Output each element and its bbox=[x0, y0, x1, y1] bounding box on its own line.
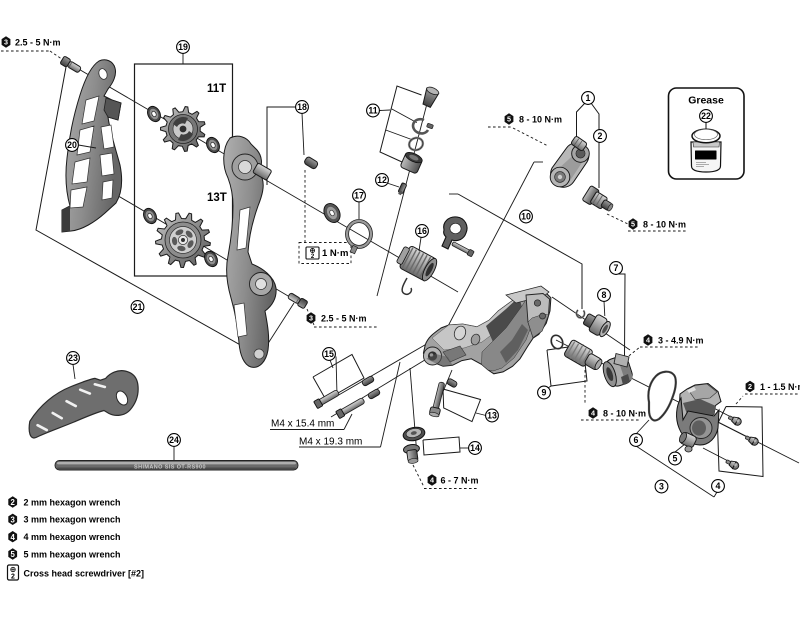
svg-text:15: 15 bbox=[324, 349, 334, 359]
svg-text:3: 3 bbox=[11, 515, 16, 524]
svg-text:6 - 7 N·m: 6 - 7 N·m bbox=[441, 476, 479, 486]
svg-text:M4 x 15.4 mm: M4 x 15.4 mm bbox=[271, 419, 334, 430]
svg-text:Cross head screwdriver [#2]: Cross head screwdriver [#2] bbox=[24, 569, 145, 579]
svg-text:11T: 11T bbox=[207, 83, 226, 95]
svg-text:10: 10 bbox=[521, 212, 531, 222]
svg-text:4: 4 bbox=[430, 476, 434, 485]
svg-text:2: 2 bbox=[11, 498, 16, 507]
svg-text:16: 16 bbox=[417, 226, 427, 236]
svg-text:2 mm hexagon wrench: 2 mm hexagon wrench bbox=[24, 497, 121, 507]
svg-text:5: 5 bbox=[507, 115, 511, 124]
svg-text:SHIMANO SIS OT-RS900: SHIMANO SIS OT-RS900 bbox=[134, 465, 206, 471]
svg-text:8: 8 bbox=[602, 290, 607, 300]
svg-text:22: 22 bbox=[701, 111, 711, 121]
svg-text:4 mm hexagon wrench: 4 mm hexagon wrench bbox=[24, 532, 121, 542]
svg-text:5: 5 bbox=[673, 454, 678, 464]
svg-text:3 mm hexagon wrench: 3 mm hexagon wrench bbox=[24, 515, 121, 525]
svg-text:13T: 13T bbox=[207, 192, 227, 204]
svg-text:8 - 10 N·m: 8 - 10 N·m bbox=[519, 115, 562, 125]
svg-text:4: 4 bbox=[716, 481, 721, 491]
svg-text:2: 2 bbox=[11, 574, 15, 581]
svg-text:2.5 - 5 N·m: 2.5 - 5 N·m bbox=[321, 314, 367, 324]
svg-text:8 - 10 N·m: 8 - 10 N·m bbox=[603, 409, 646, 419]
svg-text:24: 24 bbox=[169, 435, 179, 445]
svg-text:3: 3 bbox=[4, 38, 8, 47]
svg-text:8 - 10 N·m: 8 - 10 N·m bbox=[643, 220, 686, 230]
svg-text:5: 5 bbox=[11, 550, 16, 559]
svg-text:21: 21 bbox=[133, 302, 143, 312]
svg-text:5: 5 bbox=[631, 220, 635, 229]
svg-text:4: 4 bbox=[11, 533, 16, 542]
svg-text:12: 12 bbox=[377, 175, 387, 185]
svg-text:4: 4 bbox=[591, 409, 595, 418]
svg-text:4: 4 bbox=[646, 336, 650, 345]
svg-text:19: 19 bbox=[178, 42, 188, 52]
svg-text:11: 11 bbox=[368, 106, 377, 116]
svg-text:3 - 4.9 N·m: 3 - 4.9 N·m bbox=[658, 336, 704, 346]
svg-text:2: 2 bbox=[748, 382, 752, 391]
svg-text:1 N·m: 1 N·m bbox=[322, 248, 348, 259]
svg-text:1: 1 bbox=[586, 93, 591, 103]
svg-text:20: 20 bbox=[67, 140, 77, 150]
svg-text:2.5 - 5 N·m: 2.5 - 5 N·m bbox=[15, 38, 61, 48]
svg-text:2: 2 bbox=[598, 131, 603, 141]
svg-text:14: 14 bbox=[470, 443, 480, 453]
svg-text:Grease: Grease bbox=[688, 95, 724, 107]
svg-text:17: 17 bbox=[354, 191, 364, 201]
svg-text:13: 13 bbox=[487, 411, 497, 421]
svg-text:3: 3 bbox=[309, 314, 313, 323]
svg-text:5 mm hexagon wrench: 5 mm hexagon wrench bbox=[24, 549, 121, 559]
svg-text:23: 23 bbox=[68, 353, 78, 363]
svg-text:7: 7 bbox=[614, 263, 619, 273]
svg-text:9: 9 bbox=[542, 388, 547, 398]
svg-text:1 - 1.5 N·m: 1 - 1.5 N·m bbox=[760, 382, 800, 392]
svg-text:M4 x 19.3 mm: M4 x 19.3 mm bbox=[299, 437, 362, 448]
svg-text:6: 6 bbox=[634, 435, 639, 445]
svg-text:3: 3 bbox=[659, 482, 664, 492]
svg-text:18: 18 bbox=[297, 102, 307, 112]
